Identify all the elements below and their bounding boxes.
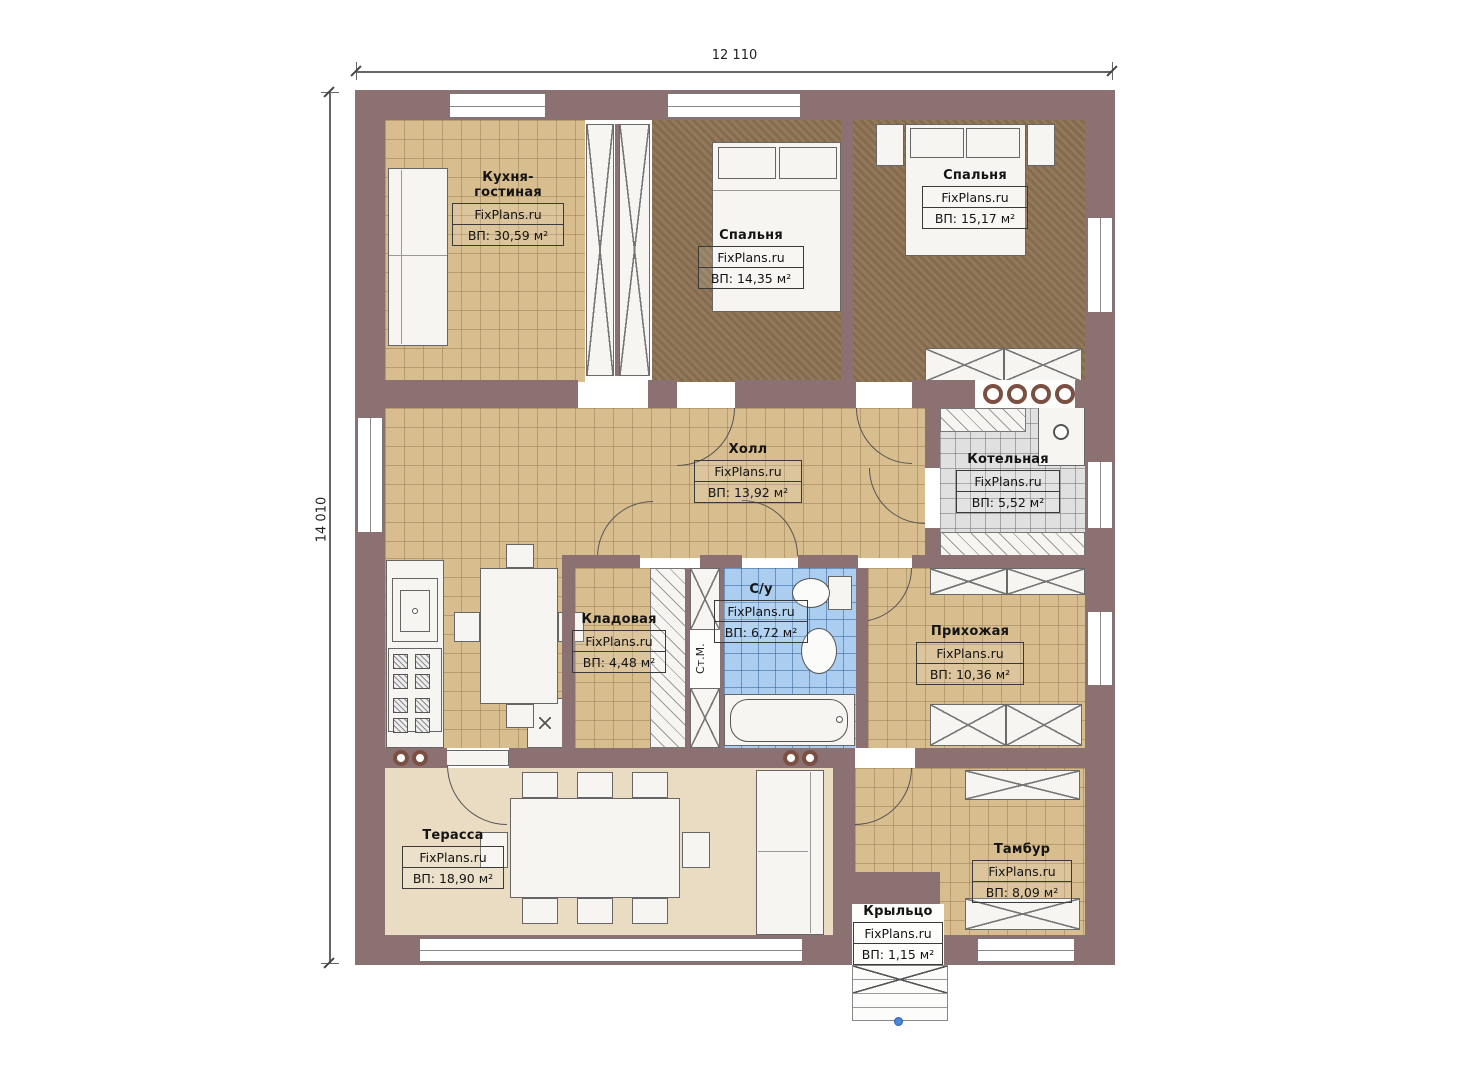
room-label-bathroom: С/у FixPlans.ru ВП: 6,72 м² [714, 582, 808, 643]
dimension-height-label: 14 010 [315, 490, 330, 550]
room-name: Крыльцо [853, 904, 943, 919]
appliance-mark [539, 717, 551, 729]
vent-pipe [1031, 384, 1051, 404]
wardrobe [586, 124, 614, 376]
room-area: ВП: 13,92 м² [695, 481, 801, 502]
bathtub-inner [730, 699, 848, 742]
wall-interior [798, 555, 858, 568]
closet-door [690, 688, 720, 748]
room-area: ВП: 4,48 м² [573, 651, 665, 672]
chair [522, 898, 558, 924]
room-label-vestibule: Тамбур FixPlans.ru ВП: 8,09 м² [972, 842, 1072, 903]
room-area: ВП: 15,17 м² [923, 207, 1027, 228]
room-brand: FixPlans.ru [957, 471, 1059, 491]
furniture-line [389, 255, 447, 256]
pillow [966, 128, 1020, 158]
step-line [853, 993, 947, 994]
dimension-width-label: 12 110 [356, 48, 1113, 63]
sofa-wardrobe-unit [388, 168, 448, 346]
wall-boiler [925, 408, 940, 468]
wardrobe [930, 704, 1006, 746]
room-name: Кладовая [572, 612, 666, 627]
window-kitchen [450, 93, 545, 118]
pillow [779, 147, 837, 179]
room-brand: FixPlans.ru [973, 861, 1071, 881]
stove-burner [393, 718, 408, 733]
floor-plan-canvas: 12 110 14 010 [0, 0, 1474, 1080]
wall-interior [1075, 380, 1085, 408]
wardrobe [1004, 348, 1082, 382]
room-area: ВП: 5,52 м² [957, 491, 1059, 512]
window-bedroom-1 [668, 93, 800, 118]
bathtub-drain [836, 716, 843, 723]
window-bedroom-2 [1087, 218, 1113, 312]
room-brand: FixPlans.ru [453, 204, 563, 224]
chair [522, 772, 558, 798]
wall-interior [735, 380, 856, 408]
sofa-backrest-line [810, 772, 811, 933]
chair [506, 704, 534, 728]
terrace-table [510, 798, 680, 898]
wardrobe [1007, 568, 1085, 595]
terrace-column [802, 750, 818, 766]
chair [632, 898, 668, 924]
room-label-hall: Холл FixPlans.ru ВП: 13,92 м² [694, 442, 802, 503]
blanket-line [713, 190, 840, 191]
wall-vestibule [915, 748, 1115, 768]
room-brand: FixPlans.ru [917, 643, 1023, 663]
stove-burner [415, 674, 430, 689]
room-brand: FixPlans.ru [715, 601, 807, 621]
room-name: Спальня [698, 228, 804, 243]
wall-porch-stub [852, 872, 940, 904]
chair [682, 832, 710, 868]
chair [632, 772, 668, 798]
wall-interior [912, 380, 975, 408]
wall-bathroom [856, 568, 868, 748]
room-label-storage: Кладовая FixPlans.ru ВП: 4,48 м² [572, 612, 666, 673]
wardrobe [619, 124, 650, 376]
room-area: ВП: 8,09 м² [973, 881, 1071, 902]
wall-wardrobe-divider [615, 124, 619, 376]
window-vestibule [978, 938, 1074, 962]
room-name: Кухня-гостиная [452, 170, 564, 200]
room-brand: FixPlans.ru [573, 631, 665, 651]
floor-hall [385, 408, 925, 558]
room-name: Спальня [922, 168, 1028, 183]
wardrobe [925, 348, 1004, 382]
room-label-entry-hall: Прихожая FixPlans.ru ВП: 10,36 м² [916, 624, 1024, 685]
room-brand: FixPlans.ru [699, 247, 803, 267]
stove-burner [393, 654, 408, 669]
toilet-tank [828, 576, 852, 610]
terrace-column [783, 750, 799, 766]
room-area: ВП: 18,90 м² [403, 867, 503, 888]
room-brand: FixPlans.ru [403, 847, 503, 867]
room-area: ВП: 14,35 м² [699, 267, 803, 288]
steps-cross-mark [853, 966, 947, 993]
room-brand: FixPlans.ru [923, 187, 1027, 207]
step-line [853, 1007, 947, 1008]
terrace-column [412, 750, 428, 766]
window-boiler [1087, 462, 1113, 528]
room-name: Терасса [402, 828, 504, 843]
room-area: ВП: 30,59 м² [453, 224, 563, 245]
sink-drain [412, 608, 418, 614]
vent-pipe [1007, 384, 1027, 404]
window-entry-hall [1087, 612, 1113, 685]
dimension-height-line [329, 92, 331, 963]
room-label-terrace: Терасса FixPlans.ru ВП: 18,90 м² [402, 828, 504, 889]
stove-burner [393, 698, 408, 713]
door-leaf-terrace [445, 750, 509, 766]
chair [454, 612, 480, 642]
window-left [357, 418, 383, 532]
room-name: Котельная [956, 452, 1060, 467]
room-name: Холл [694, 442, 802, 457]
terrace-column [393, 750, 409, 766]
wall-interior [385, 380, 578, 408]
wardrobe [1006, 704, 1082, 746]
room-brand: FixPlans.ru [854, 923, 942, 943]
stove-burner [415, 698, 430, 713]
dining-table [480, 568, 558, 704]
dimension-width-line [356, 71, 1113, 73]
chair [577, 772, 613, 798]
sofa-seat-line [758, 851, 808, 852]
furniture-line [401, 170, 402, 344]
wall-closet [686, 568, 690, 748]
pillow [718, 147, 776, 179]
wardrobe [930, 568, 1007, 595]
stove-burner [415, 718, 430, 733]
room-label-kitchen-living: Кухня-гостиная FixPlans.ru ВП: 30,59 м² [452, 170, 564, 246]
boiler-shelf [940, 408, 1026, 432]
room-label-porch: Крыльцо FixPlans.ru ВП: 1,15 м² [853, 904, 943, 965]
vent-pipe [1055, 384, 1075, 404]
room-label-bedroom-1: Спальня FixPlans.ru ВП: 14,35 м² [698, 228, 804, 289]
chair [506, 544, 534, 568]
room-area: ВП: 1,15 м² [854, 943, 942, 964]
terrace-sofa [756, 770, 824, 935]
nightstand [876, 124, 904, 166]
window-terrace-glazing [420, 938, 802, 962]
room-label-bedroom-2: Спальня FixPlans.ru ВП: 15,17 м² [922, 168, 1028, 229]
wall-interior [912, 555, 1085, 568]
pillow [910, 128, 964, 158]
room-name: С/у [714, 582, 808, 597]
room-label-boiler: Котельная FixPlans.ru ВП: 5,52 м² [956, 452, 1060, 513]
room-area: ВП: 10,36 м² [917, 663, 1023, 684]
wall-interior [700, 555, 742, 568]
wardrobe [965, 770, 1080, 800]
wall-interior [648, 380, 677, 408]
chair [577, 898, 613, 924]
wall-between-bedrooms [841, 120, 853, 380]
room-name: Тамбур [972, 842, 1072, 857]
stove-burner [393, 674, 408, 689]
boiler-dial [1053, 424, 1069, 440]
stove-burner [415, 654, 430, 669]
room-brand: FixPlans.ru [695, 461, 801, 481]
room-area: ВП: 6,72 м² [715, 621, 807, 642]
porch-marker-dot [894, 1017, 903, 1026]
nightstand [1027, 124, 1055, 166]
vent-pipe [983, 384, 1003, 404]
room-name: Прихожая [916, 624, 1024, 639]
wall-interior [562, 555, 640, 568]
